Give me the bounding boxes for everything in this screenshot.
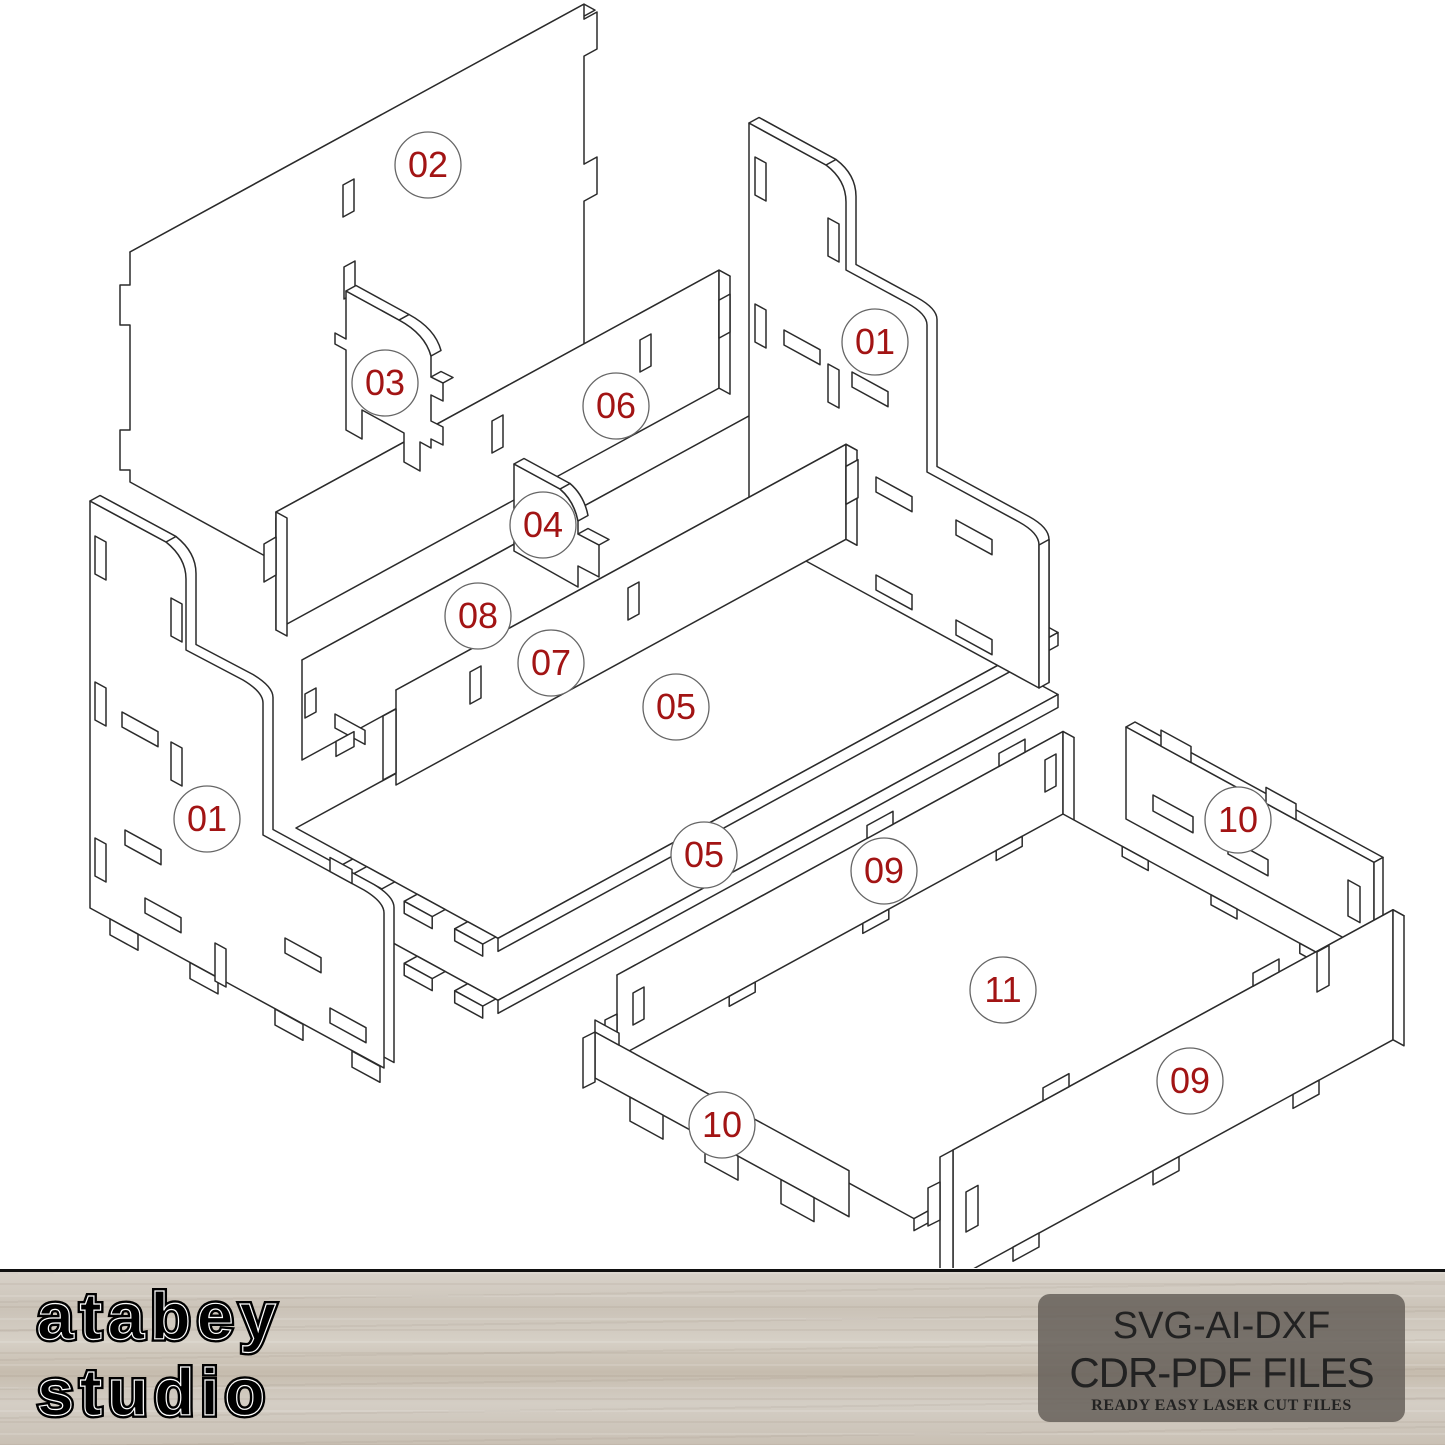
svg-text:10: 10 <box>702 1104 742 1145</box>
svg-text:05: 05 <box>684 834 724 875</box>
svg-text:01: 01 <box>187 798 227 839</box>
svg-text:07: 07 <box>531 642 571 683</box>
svg-text:09: 09 <box>1170 1060 1210 1101</box>
svg-text:08: 08 <box>458 595 498 636</box>
svg-text:02: 02 <box>408 144 448 185</box>
svg-text:01: 01 <box>855 321 895 362</box>
svg-text:11: 11 <box>984 969 1021 1010</box>
svg-text:09: 09 <box>864 850 904 891</box>
svg-text:05: 05 <box>656 686 696 727</box>
svg-text:04: 04 <box>523 504 563 545</box>
svg-text:03: 03 <box>365 362 405 403</box>
svg-text:06: 06 <box>596 385 636 426</box>
svg-text:10: 10 <box>1218 799 1258 840</box>
